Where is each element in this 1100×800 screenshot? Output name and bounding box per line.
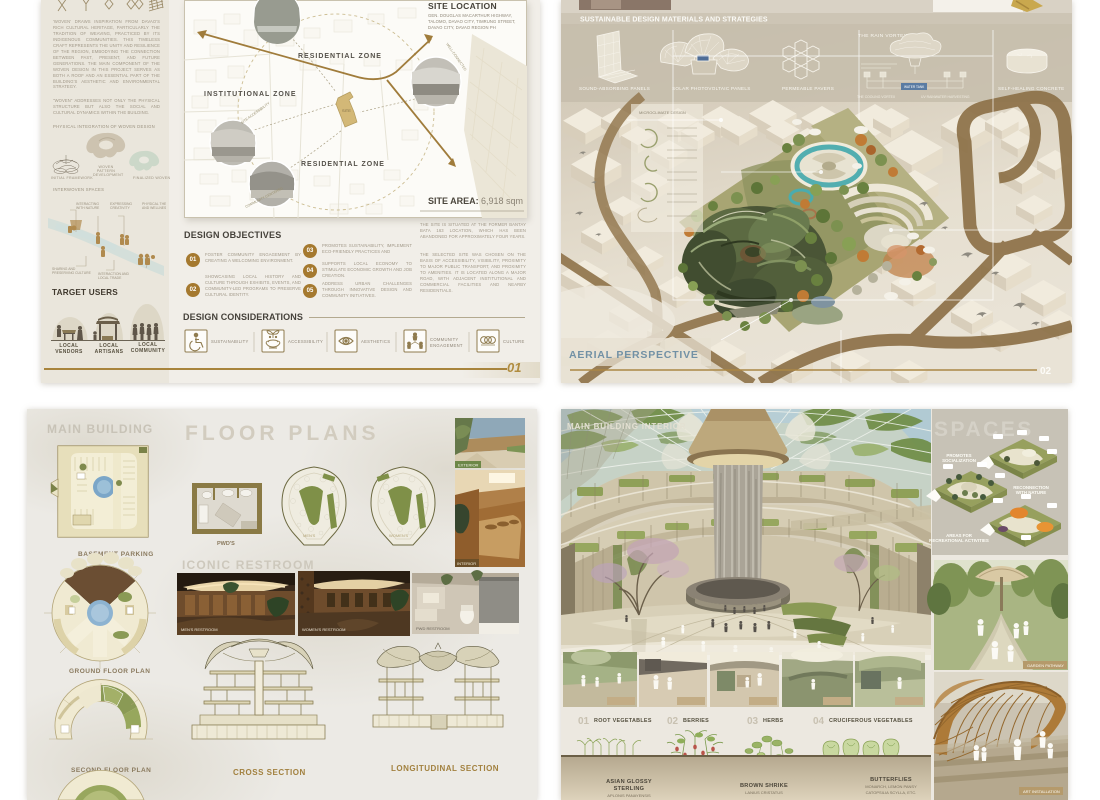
svg-text:SITE AREA:: SITE AREA: — [428, 196, 479, 206]
svg-text:MONARCH, LEMON PANSY: MONARCH, LEMON PANSY — [865, 784, 917, 789]
svg-text:MAIN BUILDING: MAIN BUILDING — [47, 422, 153, 436]
svg-text:UV RAINWATER HARVESTING: UV RAINWATER HARVESTING — [921, 95, 970, 99]
svg-text:CULTURE: CULTURE — [503, 339, 525, 344]
svg-text:AND WELLNESS: AND WELLNESS — [142, 206, 166, 210]
svg-text:ASIAN GLOSSY: ASIAN GLOSSY — [606, 779, 652, 785]
svg-text:WATER TANK: WATER TANK — [904, 85, 925, 89]
svg-text:04: 04 — [813, 716, 825, 727]
svg-text:WITH NATURE: WITH NATURE — [1016, 490, 1046, 495]
svg-text:SUSTAINABLE DESIGN MATERIALS A: SUSTAINABLE DESIGN MATERIALS AND STRATEG… — [580, 17, 768, 24]
svg-text:ACCESSIBILITY: ACCESSIBILITY — [288, 339, 323, 344]
svg-text:PERMEABLE PAVERS: PERMEABLE PAVERS — [782, 86, 834, 91]
svg-text:COMMUNITY: COMMUNITY — [131, 348, 165, 354]
svg-text:THE RAIN VORTEX: THE RAIN VORTEX — [858, 33, 908, 39]
svg-text:BROWN SHRIKE: BROWN SHRIKE — [740, 783, 788, 789]
svg-text:6,918 sqm: 6,918 sqm — [481, 196, 523, 206]
svg-text:LOCAL TRADE: LOCAL TRADE — [98, 276, 122, 280]
svg-text:SITE: SITE — [342, 108, 351, 113]
svg-text:WOMEN'S: WOMEN'S — [389, 533, 409, 538]
svg-text:BERRIES: BERRIES — [683, 718, 709, 724]
svg-text:MEN'S RESTROOM: MEN'S RESTROOM — [181, 627, 218, 632]
svg-text:03: 03 — [747, 716, 759, 727]
svg-text:HERBS: HERBS — [763, 718, 783, 724]
svg-text:STERLING: STERLING — [614, 786, 645, 792]
svg-text:ICONIC RESTROOM: ICONIC RESTROOM — [182, 558, 315, 572]
svg-text:SOLAR PHOTOVOLTAIC PANELS: SOLAR PHOTOVOLTAIC PANELS — [672, 86, 751, 91]
svg-text:APLONIS PANAYENSIS: APLONIS PANAYENSIS — [607, 793, 651, 798]
svg-text:AESTHETICS: AESTHETICS — [361, 339, 390, 344]
svg-text:CRUCIFEROUS VEGETABLES: CRUCIFEROUS VEGETABLES — [829, 718, 913, 724]
svg-text:AERIAL PERSPECTIVE: AERIAL PERSPECTIVE — [569, 349, 699, 361]
svg-text:02: 02 — [667, 716, 679, 727]
svg-text:PWD'S: PWD'S — [217, 541, 235, 547]
svg-text:CREATIVITY: CREATIVITY — [110, 206, 130, 210]
svg-text:LONGITUDINAL SECTION: LONGITUDINAL SECTION — [391, 764, 499, 773]
svg-text:SELF-HEALING CONCRETE: SELF-HEALING CONCRETE — [998, 86, 1065, 91]
svg-text:ROOT VEGETABLES: ROOT VEGETABLES — [594, 718, 652, 724]
svg-text:MAIN BUILDING INTERIOR: MAIN BUILDING INTERIOR — [567, 422, 686, 431]
svg-text:CATOPSILIA SCYLLA, ETC.: CATOPSILIA SCYLLA, ETC. — [866, 790, 917, 795]
svg-text:THE COOLING VORTEX: THE COOLING VORTEX — [857, 95, 896, 99]
svg-text:RESIDENTIAL ZONE: RESIDENTIAL ZONE — [301, 161, 385, 168]
svg-text:GARDEN PATHWAY: GARDEN PATHWAY — [1027, 663, 1064, 668]
svg-text:EXTERIOR: EXTERIOR — [458, 463, 479, 468]
svg-text:FLOOR PLANS: FLOOR PLANS — [185, 422, 380, 445]
svg-text:ARTISANS: ARTISANS — [95, 349, 124, 354]
svg-text:INTERIOR: INTERIOR — [457, 561, 476, 566]
svg-text:WOMEN'S RESTROOM: WOMEN'S RESTROOM — [302, 627, 345, 632]
svg-text:01: 01 — [578, 716, 590, 727]
svg-text:WITH NATURE: WITH NATURE — [76, 206, 100, 210]
svg-text:02: 02 — [1040, 366, 1052, 377]
svg-text:COMMUNITY: COMMUNITY — [430, 337, 459, 342]
svg-text:MEN'S: MEN'S — [303, 533, 316, 538]
svg-text:SOCIALIZATION: SOCIALIZATION — [942, 458, 976, 463]
svg-text:BUTTERFLIES: BUTTERFLIES — [870, 777, 912, 783]
svg-text:LANIUS CRISTATUS: LANIUS CRISTATUS — [745, 790, 783, 795]
svg-text:SUSTAINABILITY: SUSTAINABILITY — [211, 339, 249, 344]
svg-text:ART INSTALLATION: ART INSTALLATION — [1023, 789, 1060, 794]
svg-text:ENGAGEMENT: ENGAGEMENT — [430, 343, 463, 348]
svg-text:SITE ACCESSIBILITY: SITE ACCESSIBILITY — [240, 101, 271, 125]
svg-text:MICROCLIMATE DESIGN: MICROCLIMATE DESIGN — [639, 110, 686, 115]
svg-text:PRESERVING CULTURE: PRESERVING CULTURE — [52, 271, 92, 275]
svg-text:CROSS SECTION: CROSS SECTION — [233, 768, 306, 777]
svg-text:SOUND-ABSORBING PANELS: SOUND-ABSORBING PANELS — [579, 86, 650, 91]
svg-text:GROUND FLOOR PLAN: GROUND FLOOR PLAN — [69, 668, 150, 675]
svg-text:VENDORS: VENDORS — [55, 349, 83, 354]
svg-text:RECREATIONAL ACTIVITIES: RECREATIONAL ACTIVITIES — [929, 538, 989, 543]
svg-text:RESIDENTIAL ZONE: RESIDENTIAL ZONE — [298, 53, 382, 60]
svg-text:PWD RESTROOM: PWD RESTROOM — [416, 626, 450, 631]
svg-text:SPACES: SPACES — [934, 418, 1034, 441]
svg-text:INSTITUTIONAL ZONE: INSTITUTIONAL ZONE — [204, 91, 297, 98]
